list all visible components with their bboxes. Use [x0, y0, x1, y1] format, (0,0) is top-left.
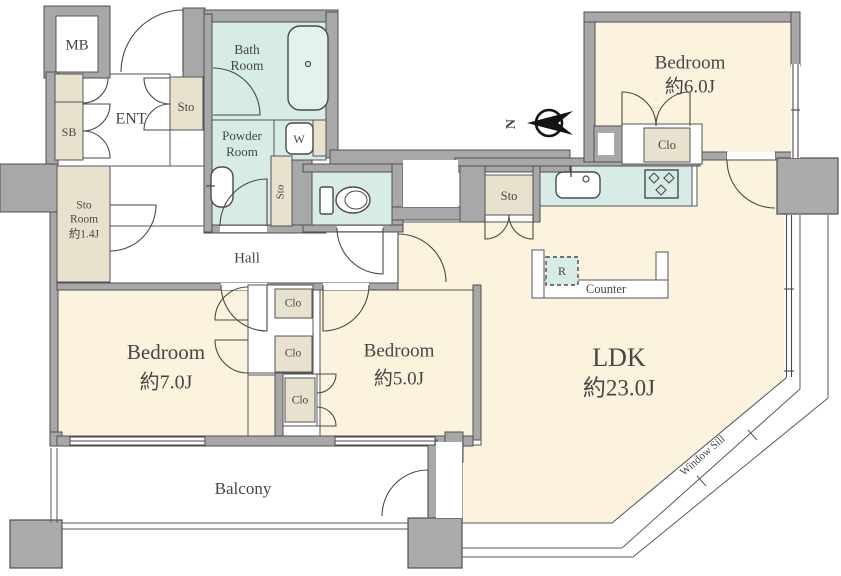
- toilet-tank-icon: [320, 187, 333, 214]
- entrance-closet-upper: [55, 74, 83, 102]
- compass-north-label: N: [504, 119, 519, 129]
- powder-room-label-2: Room: [226, 144, 258, 159]
- floor-plan-canvas: N MB ENT SB Sto Bath Room Powder Room W …: [0, 0, 841, 576]
- powder-storage-label: Sto: [275, 184, 287, 199]
- bedroom-7j-closet-upper-label: Clo: [285, 298, 302, 310]
- shoe-box-label: SB: [62, 125, 77, 139]
- bedroom-7j-label-1: Bedroom: [127, 340, 205, 364]
- bedroom-6j-label-1: Bedroom: [655, 52, 726, 73]
- ldk-label-1: LDK: [592, 343, 646, 372]
- washbasin-icon: [211, 167, 233, 207]
- north-arrow-icon: [527, 111, 573, 135]
- bedroom-7j-label-2: 約7.0J: [140, 371, 193, 394]
- compass: N: [504, 110, 573, 136]
- bathroom-label-2: Room: [230, 58, 264, 73]
- counter-left-end: [532, 250, 544, 298]
- washer-side-shelf: [313, 120, 326, 156]
- storage-room-label-2: Room: [70, 214, 98, 226]
- balcony-label: Balcony: [215, 479, 272, 498]
- entrance-label: ENT: [115, 111, 146, 128]
- bedroom-7j-floor-ext: [248, 375, 275, 438]
- mb-label: MB: [65, 37, 88, 53]
- entrance-storage-label: Sto: [178, 100, 195, 114]
- storage-room-label-1: Sto: [76, 200, 92, 212]
- powder-room-label-1: Powder: [222, 128, 262, 143]
- bedroom-5j-closet-label: Clo: [292, 395, 309, 407]
- floor-plan: N MB ENT SB Sto Bath Room Powder Room W …: [0, 0, 841, 576]
- bathroom-label-1: Bath: [234, 42, 260, 57]
- pillar-right: [777, 158, 838, 214]
- washer-label: W: [293, 132, 305, 146]
- ldk-label-2: 約23.0J: [583, 375, 655, 400]
- pillar-bottom-middle: [408, 518, 462, 568]
- bedroom-5j-floor: [320, 290, 473, 438]
- bathtub-icon: [288, 26, 328, 110]
- bedroom-5j-label-1: Bedroom: [364, 340, 435, 361]
- pillar-bottom-left: [10, 520, 62, 568]
- bedroom-7j-floor: [57, 290, 248, 438]
- counter-label: Counter: [586, 282, 627, 296]
- bedroom-5j-label-2: 約5.0J: [374, 367, 424, 389]
- kitchen-sink-icon: [556, 172, 600, 198]
- storage-room-label-3: 約1.4J: [69, 227, 100, 241]
- kitchen-storage-label: Sto: [501, 189, 518, 203]
- refrigerator-label: R: [558, 264, 566, 278]
- bedroom-7j-closet-lower-label: Clo: [285, 348, 302, 360]
- bedroom-6j-closet-label: Clo: [658, 138, 676, 152]
- hall-label: Hall: [234, 250, 260, 266]
- bedroom-6j-label-2: 約6.0J: [665, 75, 715, 97]
